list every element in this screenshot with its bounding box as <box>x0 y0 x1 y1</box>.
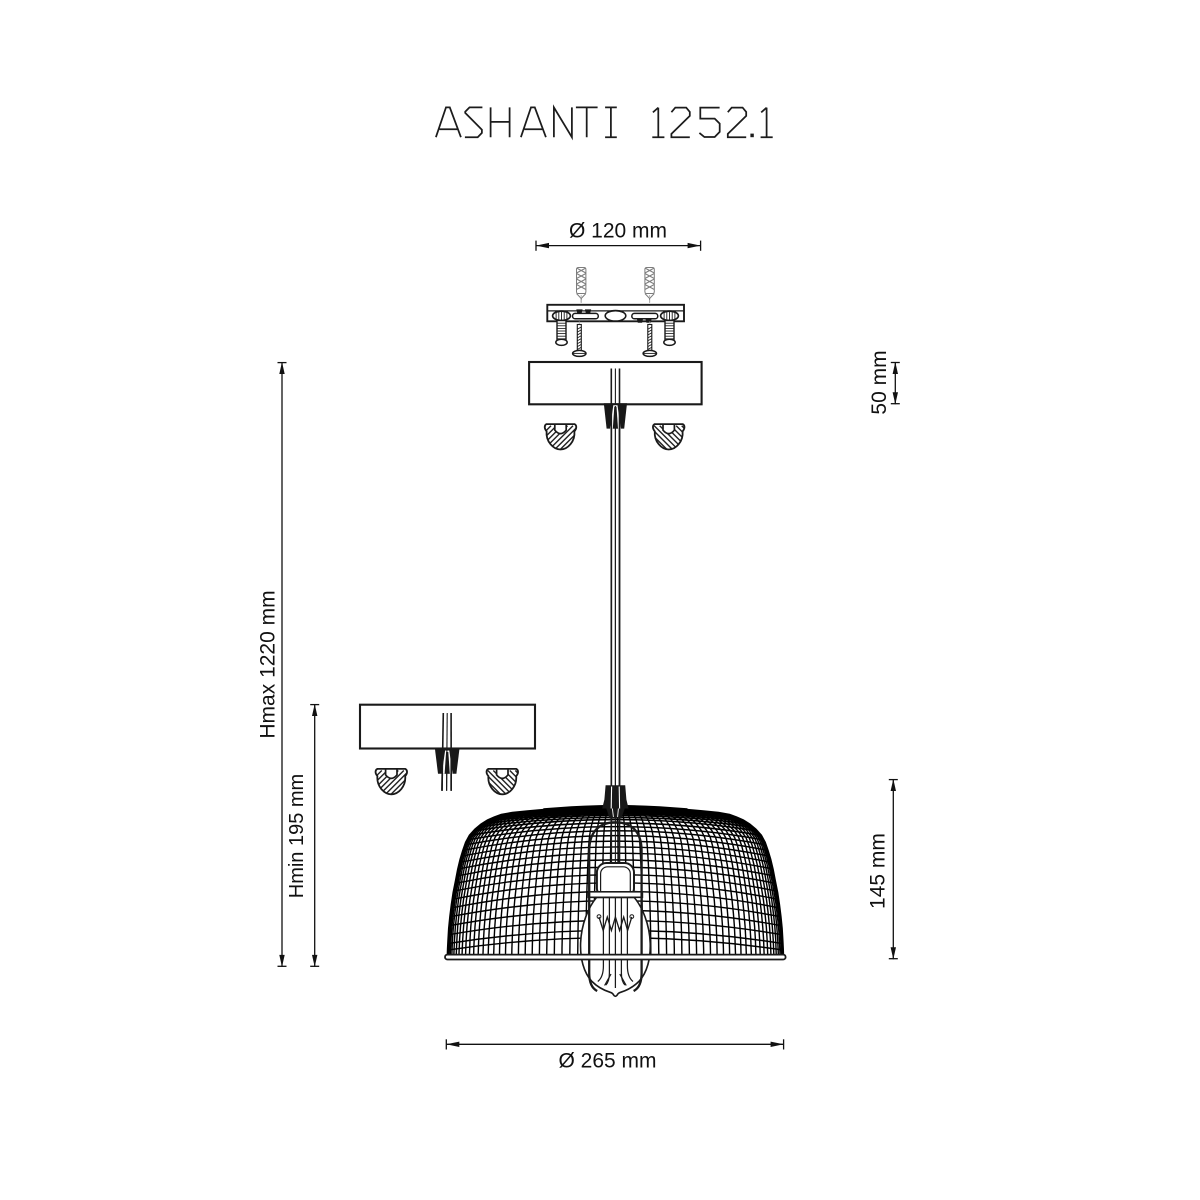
svg-text:50 mm: 50 mm <box>868 350 891 414</box>
svg-text:Hmax 1220 mm: Hmax 1220 mm <box>257 590 280 738</box>
svg-text:145 mm: 145 mm <box>867 833 890 909</box>
svg-text:Ø 265 mm: Ø 265 mm <box>558 1050 656 1073</box>
svg-text:Hmin 195 mm: Hmin 195 mm <box>286 774 308 898</box>
svg-text:Ø 120 mm: Ø 120 mm <box>569 220 667 243</box>
